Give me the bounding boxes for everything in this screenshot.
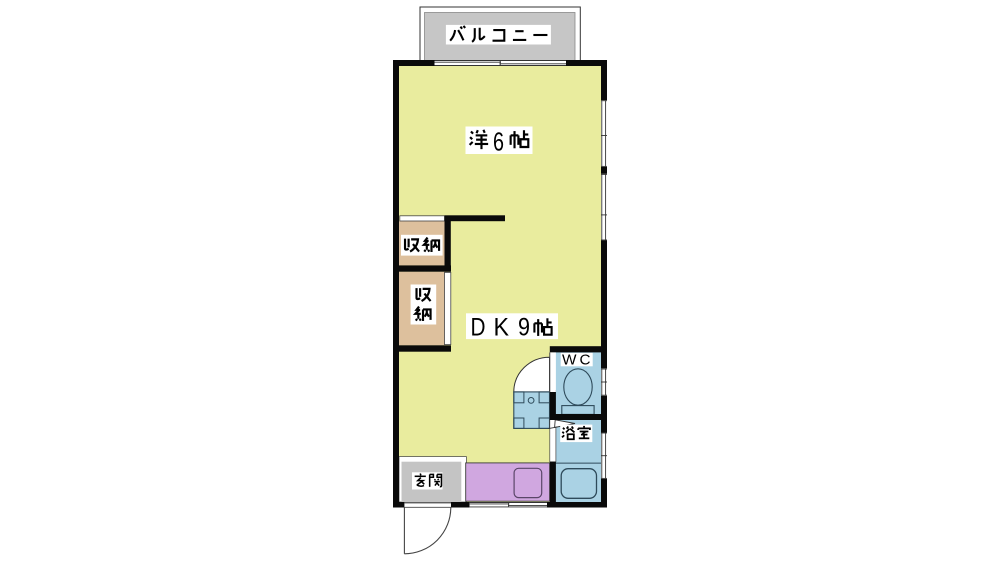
svg-text:9: 9 [518, 314, 530, 342]
svg-text:K: K [494, 314, 510, 342]
svg-text:D: D [471, 314, 486, 342]
svg-text:6: 6 [493, 127, 504, 157]
svg-text:C: C [580, 353, 591, 369]
svg-text:W: W [562, 353, 577, 369]
